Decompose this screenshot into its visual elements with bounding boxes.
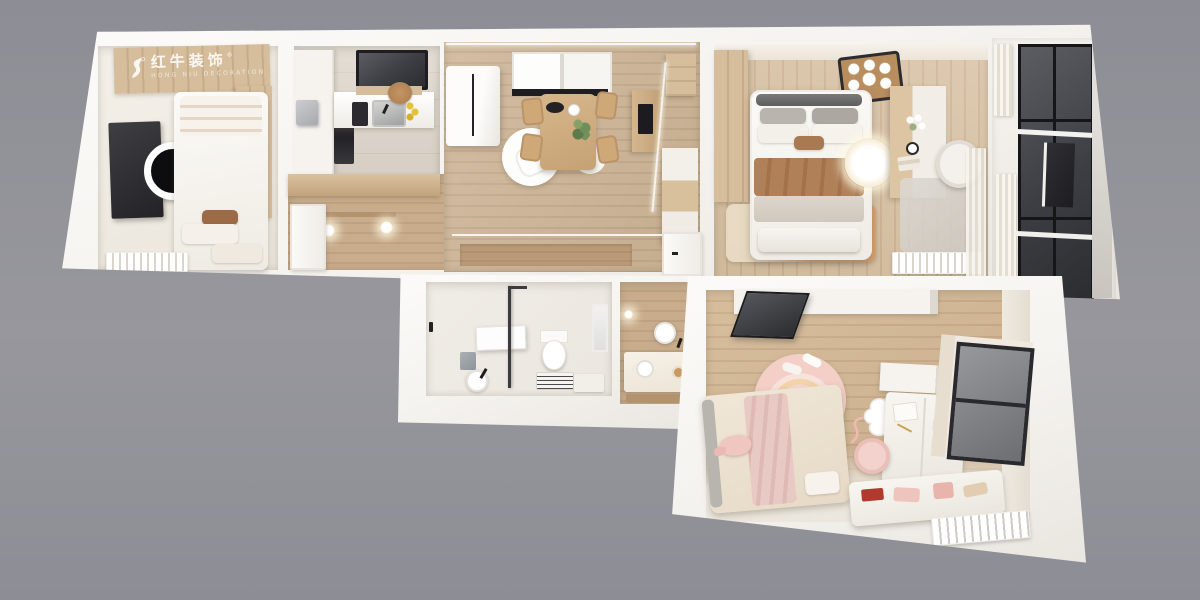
door-handle (672, 252, 678, 255)
kids-bedroom (706, 290, 1030, 522)
table-plant (570, 116, 592, 142)
serving-tray (546, 102, 564, 113)
plate (568, 104, 580, 116)
bathroom-window (592, 304, 608, 352)
media-desk (632, 90, 660, 152)
tv-screen (638, 104, 653, 134)
slipper-2 (781, 361, 803, 376)
dining-table (540, 94, 596, 170)
dining-chair-2 (519, 133, 544, 163)
glazing-mullion-h2 (1021, 217, 1091, 220)
cooktop (352, 102, 368, 126)
water-heater-box (296, 100, 318, 125)
dining-chair-4 (595, 135, 620, 165)
kitchen-sink (372, 100, 406, 127)
accent-pillow (794, 136, 824, 150)
kids-bed (701, 384, 851, 514)
shower-glass-partition (508, 286, 511, 388)
bed (174, 92, 268, 270)
headboard (756, 94, 862, 106)
gray-pillow-1 (760, 108, 806, 124)
pillow-brown (202, 210, 238, 225)
entry-hallway (288, 174, 458, 270)
white-beam-1 (1015, 129, 1097, 138)
folded-duvet-stack (180, 96, 262, 136)
mirror-cabinet (460, 352, 476, 370)
window-mullion (956, 398, 1026, 408)
master-sheer-curtain (966, 148, 986, 282)
bull-logo-icon (128, 57, 147, 80)
bathroom-wing-walls (398, 272, 714, 432)
toy-red (861, 488, 884, 502)
watermark-logo: 红牛装饰® HONG NIU DECORATION (128, 51, 266, 80)
towel-radiator (536, 372, 574, 390)
refrigerator (446, 66, 500, 146)
floorplan-render-canvas: 红牛装饰® HONG NIU DECORATION (0, 0, 1200, 600)
pencil (897, 423, 912, 432)
throw-blanket (754, 196, 864, 222)
book-stack (897, 155, 921, 172)
flower-vase (904, 114, 928, 136)
master-ceiling-light (844, 138, 894, 188)
watermark-brand: 红牛装饰® (151, 51, 266, 70)
balcony-curtain-top (994, 44, 1012, 116)
nook-round-mirror (654, 322, 676, 344)
kids-wing-walls (658, 276, 1086, 570)
toilet (540, 330, 566, 370)
cutting-board (388, 82, 412, 104)
radiator (106, 252, 188, 272)
bedroom: 红牛装饰® HONG NIU DECORATION (98, 46, 278, 270)
white-beam-2 (1015, 231, 1097, 240)
wall-hook (429, 322, 433, 332)
ceiling-led-strip (446, 43, 696, 45)
toy-beige (963, 482, 989, 498)
hallway-shelf (316, 212, 396, 217)
slipper-1 (801, 352, 823, 369)
whale-plush-tail (714, 446, 727, 456)
dining-chair-3 (594, 91, 618, 120)
toy-pink-2 (933, 482, 954, 500)
kids-desk-chair (854, 438, 890, 474)
living-dining-room (444, 42, 700, 272)
desk-wall-cabinet (879, 363, 938, 394)
shower-step (574, 374, 604, 392)
hall-door (662, 232, 702, 276)
master-wardrobe (714, 50, 748, 202)
hallway-console-cabinet (288, 174, 440, 196)
living-window-blinds (512, 52, 612, 96)
lower-cabinets (662, 148, 698, 244)
floor-glass-rail (452, 234, 664, 236)
kitchen (294, 46, 440, 180)
shower-glass-return (511, 286, 527, 289)
toilet-bowl (542, 340, 566, 370)
desk-shelf-divider (920, 398, 926, 478)
bed-end-bench (758, 228, 860, 252)
kids-window (931, 334, 1033, 464)
notebook (892, 402, 918, 423)
main-wing-walls: 红牛装饰® HONG NIU DECORATION (60, 22, 1120, 302)
balcony-glazing (1018, 44, 1094, 302)
bathroom (426, 282, 612, 396)
pillow-white-1 (182, 224, 238, 244)
nook-faucet (676, 338, 682, 348)
dining-chair-1 (521, 97, 545, 126)
kids-pillow (804, 471, 840, 496)
nook-ceiling-light (624, 310, 633, 319)
registered-mark: ® (226, 51, 236, 58)
toy-pink-1 (893, 487, 920, 502)
media-upper-cabinet (666, 54, 696, 96)
coffee-cup (906, 142, 919, 155)
lemons (406, 102, 420, 122)
balcony (992, 38, 1116, 304)
entry-mat (460, 244, 632, 266)
ceiling-light-2 (380, 221, 393, 234)
kids-window-glass (947, 342, 1035, 466)
pink-blanket (743, 393, 796, 506)
nook-sink-bowl (636, 360, 654, 378)
fridge-handle (472, 74, 474, 136)
bedroom-door (290, 204, 326, 270)
balcony-tv-panel (1042, 142, 1075, 207)
pillow-white-2 (212, 244, 262, 263)
marble-sill (1092, 42, 1112, 298)
gray-pillow-2 (812, 108, 858, 124)
bathroom-mirror (476, 325, 527, 351)
master-bedroom (714, 44, 988, 286)
glazing-mullion-h1 (1021, 119, 1091, 122)
